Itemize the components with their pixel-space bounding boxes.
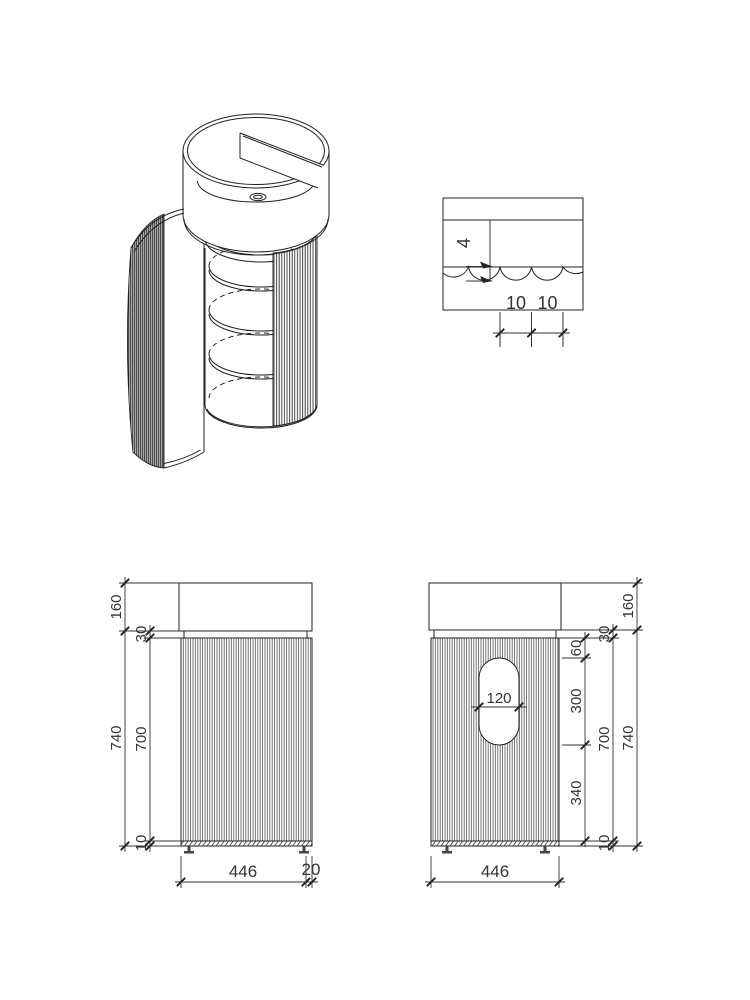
- dim-rear-cutout-width: 120: [486, 690, 511, 707]
- dim-rear-cabinet-height: 700: [596, 726, 613, 751]
- rear-plinth: [431, 841, 559, 846]
- dim-flute-depth: 4: [454, 238, 474, 248]
- front-elevation-view: 160 740 30 700 10 446 20: [108, 577, 320, 888]
- isometric-view: [127, 114, 329, 468]
- dim-rear-total-height: 740: [620, 725, 637, 750]
- dim-rear-cutout-height: 300: [568, 688, 585, 713]
- drawing-canvas: 4 10 10: [0, 0, 750, 1000]
- iso-open-door: [127, 209, 204, 468]
- dim-front-side-offset: 20: [302, 860, 321, 879]
- dim-front-total-height: 740: [108, 725, 125, 750]
- front-basin: [179, 583, 312, 631]
- dim-rear-bottom-gap: 10: [596, 835, 613, 852]
- detail-scallop-profile: [443, 267, 583, 280]
- front-cabinet: [181, 638, 312, 841]
- front-plinth: [181, 841, 312, 846]
- rear-elevation-view: 120 60 300 340 30 700: [425, 577, 643, 888]
- dim-flute-pitch-b: 10: [537, 293, 557, 313]
- rear-basin: [429, 583, 561, 630]
- dim-front-cabinet-height: 700: [133, 726, 150, 751]
- rear-feet: [442, 846, 550, 854]
- dim-front-basin-height: 160: [108, 594, 125, 619]
- detail-depth-dimension: [466, 220, 492, 283]
- dim-front-bottom-gap: 10: [133, 835, 150, 852]
- dim-rear-basin-height: 160: [620, 593, 637, 618]
- detail-pitch-dimension: [493, 312, 570, 347]
- dim-rear-top-gap: 30: [596, 626, 613, 643]
- dim-rear-width: 446: [481, 862, 509, 881]
- dim-rear-cutout-offset-top: 60: [568, 640, 585, 657]
- dim-front-width: 446: [229, 862, 257, 881]
- iso-fluted-panel: [273, 232, 317, 426]
- flute-detail-view: 4 10 10: [443, 198, 583, 347]
- dim-rear-cutout-offset-bottom: 340: [568, 780, 585, 805]
- dim-flute-pitch-a: 10: [506, 293, 526, 313]
- technical-drawing-page: 4 10 10: [0, 0, 750, 1000]
- iso-basin: [183, 114, 329, 255]
- front-feet: [184, 846, 309, 854]
- dim-front-top-gap: 30: [133, 626, 150, 643]
